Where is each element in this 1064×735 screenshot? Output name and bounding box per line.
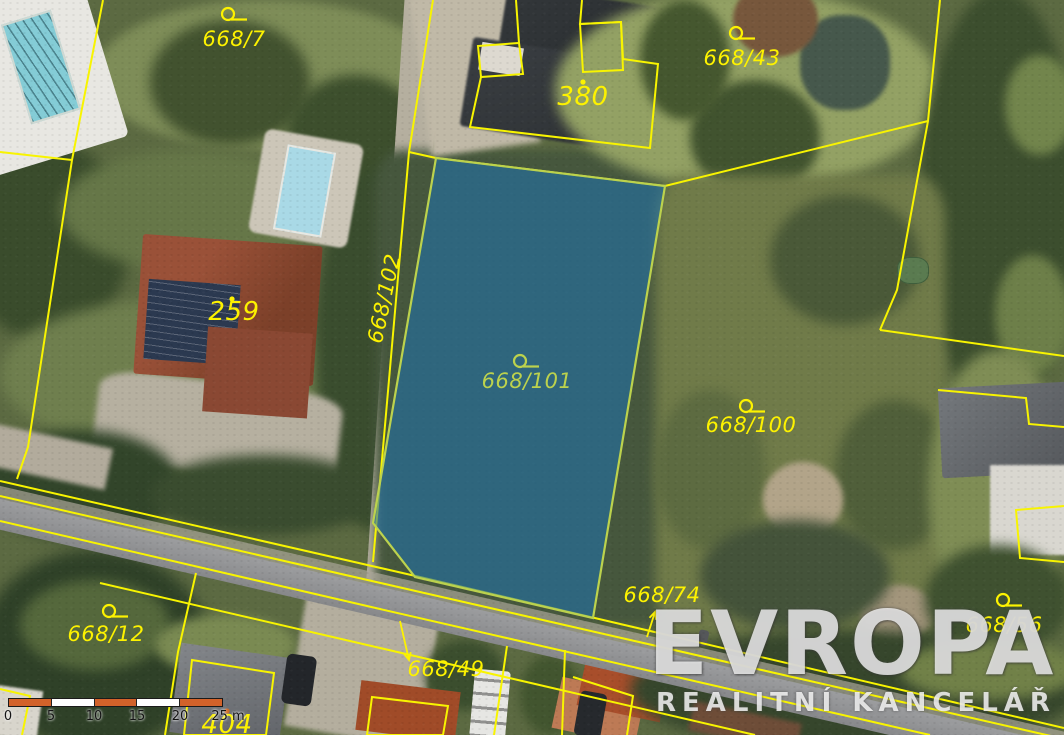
cadastral-overlay: 668/7668/43380668/102259668/101668/10066… xyxy=(0,0,1064,735)
parcel-number-label: 668/43 xyxy=(704,46,781,70)
building-point-marker xyxy=(580,79,585,84)
building-number-label: 380 xyxy=(557,82,608,112)
leader-arrow xyxy=(647,612,656,637)
building-number-label: 259 xyxy=(208,297,259,327)
parcel-symbol-icon xyxy=(730,27,755,39)
scalebar-segment xyxy=(136,699,179,706)
parcel-number-label: 668/102 xyxy=(363,252,405,346)
scale-bar-ticks: 0510152025 m xyxy=(5,709,243,727)
parcel-number-label: 668/74 xyxy=(624,583,701,607)
scalebar-tick-label: 25 m xyxy=(211,709,244,724)
scalebar-segment xyxy=(179,699,222,706)
scalebar-tick-label: 0 xyxy=(4,709,12,724)
scalebar-tick-label: 20 xyxy=(172,709,189,724)
parcel-number-label: 668/12 xyxy=(68,622,145,646)
parcel-labels-layer: 668/7668/43380668/102259668/101668/10066… xyxy=(68,8,1043,735)
building-point-marker xyxy=(229,296,234,301)
aerial-cadastral-map: 668/7668/43380668/102259668/101668/10066… xyxy=(0,0,1064,735)
scalebar-tick-label: 5 xyxy=(47,709,55,724)
parcel-number-label: 668/101 xyxy=(482,369,573,393)
map-scale-bar: 0510152025 m xyxy=(5,698,243,727)
scalebar-tick-label: 15 xyxy=(129,709,146,724)
scale-bar-segments xyxy=(8,698,223,707)
scalebar-segment xyxy=(51,699,94,706)
scalebar-segment xyxy=(9,699,51,706)
parcel-symbol-icon xyxy=(740,400,765,412)
parcel-number-label: 668/49 xyxy=(408,657,485,681)
parcel-number-label: 668/100 xyxy=(706,413,797,437)
parcel-number-label: 668/7 xyxy=(202,27,265,51)
parcel-symbol-icon xyxy=(222,8,247,20)
scalebar-segment xyxy=(94,699,137,706)
parcel-symbol-icon xyxy=(997,594,1022,606)
parcel-number-label: 668/56 xyxy=(966,613,1043,637)
scalebar-tick-label: 10 xyxy=(86,709,103,724)
parcel-symbol-icon xyxy=(103,605,128,617)
